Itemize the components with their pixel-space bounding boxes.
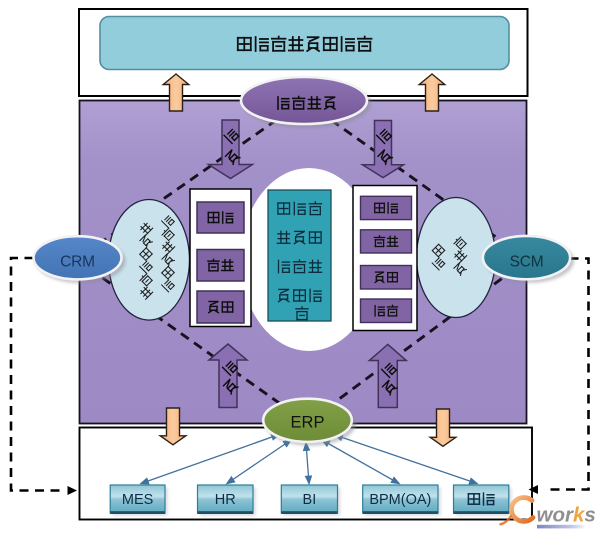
svg-text:ERP: ERP (291, 414, 325, 432)
svg-text:MES: MES (122, 492, 153, 508)
svg-text:SCM: SCM (510, 254, 544, 271)
svg-text:works: works (537, 504, 596, 527)
svg-text:CRM: CRM (60, 254, 95, 271)
svg-text:BPM(OA): BPM(OA) (369, 492, 431, 508)
svg-text:BI: BI (303, 492, 317, 508)
svg-text:HR: HR (215, 492, 236, 508)
